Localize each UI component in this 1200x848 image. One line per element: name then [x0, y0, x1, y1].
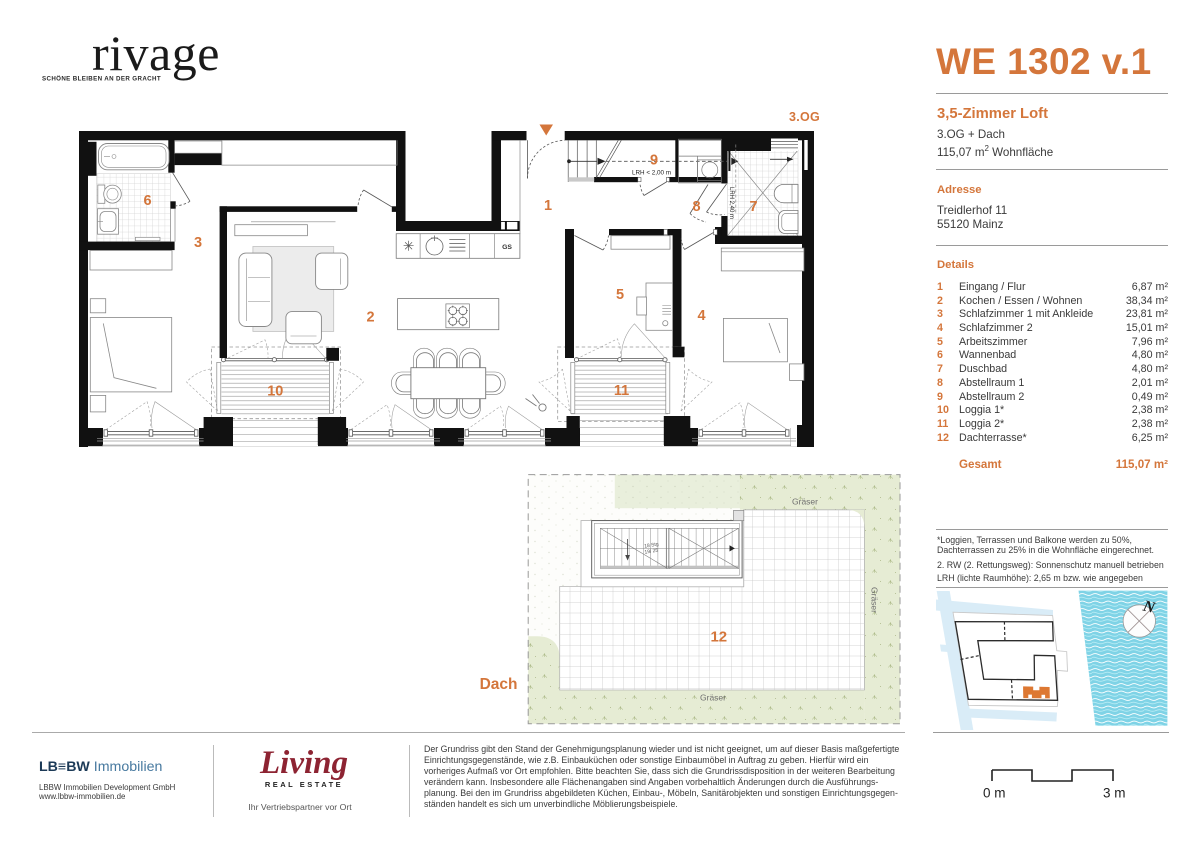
svg-text:6: 6 — [143, 193, 151, 209]
svg-text:LRH < 2,00 m: LRH < 2,00 m — [632, 170, 671, 177]
svg-text:10: 10 — [267, 383, 283, 399]
svg-text:1: 1 — [544, 198, 552, 214]
svg-text:5: 5 — [616, 287, 624, 303]
svg-text:2: 2 — [367, 310, 375, 326]
svg-text:LRH 2,40 m: LRH 2,40 m — [728, 187, 734, 219]
svg-text:Dach: Dach — [480, 676, 518, 693]
svg-text:0 m: 0 m — [983, 786, 1006, 801]
svg-text:8: 8 — [693, 199, 701, 215]
svg-text:3 m: 3 m — [1103, 786, 1126, 801]
svg-text:3.OG: 3.OG — [789, 110, 820, 124]
svg-text:4: 4 — [697, 308, 705, 324]
svg-text:Gräser: Gräser — [700, 693, 726, 703]
svg-text:11: 11 — [614, 383, 629, 399]
svg-text:12: 12 — [710, 629, 727, 646]
svg-text:Gräser: Gräser — [870, 587, 880, 613]
svg-text:GS: GS — [502, 244, 512, 251]
svg-text:Gräser: Gräser — [792, 497, 818, 507]
svg-text:7: 7 — [750, 199, 758, 215]
svg-text:9: 9 — [650, 153, 658, 169]
svg-text:3: 3 — [194, 235, 202, 251]
